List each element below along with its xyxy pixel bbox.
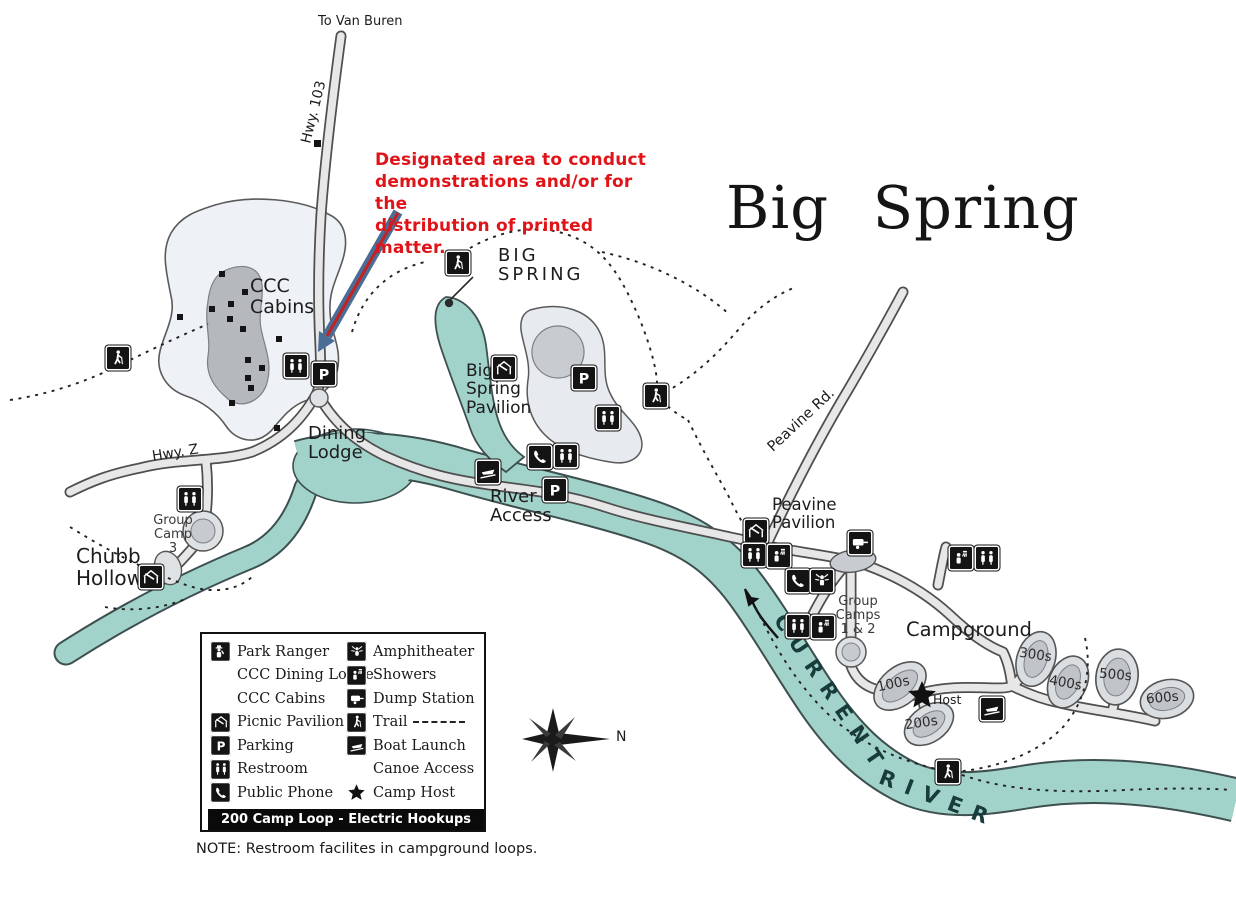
- camp-host-star-icon: [906, 679, 938, 711]
- boat-launch-icon: [980, 697, 1005, 722]
- trail-dash-sample: [413, 721, 465, 723]
- restroom-icon: [210, 759, 231, 780]
- legend-note: NOTE: Restroom facilites in campground l…: [196, 841, 537, 857]
- dump-station-icon: [346, 688, 367, 709]
- legend-right-column: Amphitheater Showers Dump Station Trail …: [344, 640, 482, 805]
- map-title: Big Spring: [726, 176, 1080, 240]
- amphitheater-icon: [810, 569, 835, 594]
- boat-launch-icon: [346, 735, 367, 756]
- legend-item: Park Ranger: [208, 640, 344, 664]
- restroom-icon: [786, 614, 811, 639]
- legend-label: Park Ranger: [237, 644, 329, 660]
- restroom-icon: [975, 546, 1000, 571]
- restroom-icon: [178, 487, 203, 512]
- annotation-text: Designated area to conduct demonstration…: [375, 149, 655, 259]
- restroom-icon: [554, 444, 579, 469]
- parking-icon: [312, 362, 337, 387]
- legend-item: Boat Launch: [344, 734, 482, 758]
- parking-icon: [572, 366, 597, 391]
- legend-item: Camp Host: [344, 781, 482, 805]
- legend-item: Dump Station: [344, 687, 482, 711]
- public-phone-icon: [528, 445, 553, 470]
- camp-host-star-icon: [346, 782, 367, 803]
- dump-station-icon: [848, 531, 873, 556]
- legend-item: Amphitheater: [344, 640, 482, 664]
- trail-icon: [106, 346, 131, 371]
- legend-footer: 200 Camp Loop - Electric Hookups: [208, 809, 484, 830]
- picnic-pavilion-icon: [744, 519, 769, 544]
- legend-item: Showers: [344, 664, 482, 688]
- label-big-spring: BIG SPRING: [498, 246, 584, 285]
- trail-icon: [446, 251, 471, 276]
- park-ranger-icon: [210, 641, 231, 662]
- legend-label: Restroom: [237, 761, 308, 777]
- legend-item: Picnic Pavilion: [208, 711, 344, 735]
- amphitheater-icon: [346, 641, 367, 662]
- legend-item: CCC Cabins: [208, 687, 344, 711]
- legend-label: Dump Station: [373, 691, 475, 707]
- legend-item: Restroom: [208, 758, 344, 782]
- legend-label: Canoe Access: [373, 761, 474, 777]
- label-to-van-buren: To Van Buren: [318, 15, 403, 29]
- trail-icon: [644, 384, 669, 409]
- restroom-icon: [742, 543, 767, 568]
- shower-icon: [949, 546, 974, 571]
- parking-icon: [543, 478, 568, 503]
- public-phone-icon: [210, 782, 231, 803]
- label-chubb-hollow: Chubb Hollow: [76, 546, 143, 589]
- trail-icon: [346, 712, 367, 733]
- legend-label: CCC Cabins: [237, 691, 325, 707]
- shower-icon: [811, 615, 836, 640]
- label-campground: Campground: [906, 619, 1032, 640]
- legend-label: Trail: [373, 714, 408, 730]
- boat-launch-icon: [476, 460, 501, 485]
- public-phone-icon: [786, 569, 811, 594]
- big-spring-map: P: [0, 0, 1236, 916]
- label-peavine-pavilion: Peavine Pavilion: [772, 496, 837, 532]
- legend-item: Parking: [208, 734, 344, 758]
- trail-icon: [936, 760, 961, 785]
- label-loop-500s: 500s: [1098, 667, 1132, 684]
- picnic-pavilion-icon: [139, 565, 164, 590]
- legend-label: Public Phone: [237, 785, 333, 801]
- legend-label: Picnic Pavilion: [237, 714, 344, 730]
- legend-label: Boat Launch: [373, 738, 466, 754]
- legend-left-column: Park Ranger CCC Dining Lodge CCC Cabins …: [208, 640, 344, 805]
- restroom-icon: [284, 354, 309, 379]
- label-group-camps-1-2: Group Camps 1 & 2: [832, 595, 884, 637]
- compass-north-label: N: [616, 730, 626, 745]
- parking-icon: [210, 735, 231, 756]
- shower-icon: [346, 665, 367, 686]
- restroom-icon: [596, 406, 621, 431]
- legend-box: Park Ranger CCC Dining Lodge CCC Cabins …: [200, 632, 486, 832]
- label-ccc-cabins: CCC Cabins: [250, 276, 314, 317]
- legend-label: Camp Host: [373, 785, 455, 801]
- compass-rose: [522, 708, 610, 772]
- legend-item: Trail: [344, 711, 482, 735]
- label-dining-lodge: Dining Lodge: [308, 424, 366, 463]
- shower-icon: [767, 544, 792, 569]
- legend-item: Canoe Access: [344, 758, 482, 782]
- legend-item: CCC Dining Lodge: [208, 664, 344, 688]
- label-loop-600s: 600s: [1145, 690, 1179, 707]
- legend-label: Amphitheater: [373, 644, 474, 660]
- legend-label: Parking: [237, 738, 294, 754]
- legend-label: Showers: [373, 667, 436, 683]
- picnic-pavilion-icon: [210, 712, 231, 733]
- label-group-camp-3: Group Camp 3: [150, 514, 196, 556]
- legend-item: Public Phone: [208, 781, 344, 805]
- picnic-pavilion-icon: [492, 356, 517, 381]
